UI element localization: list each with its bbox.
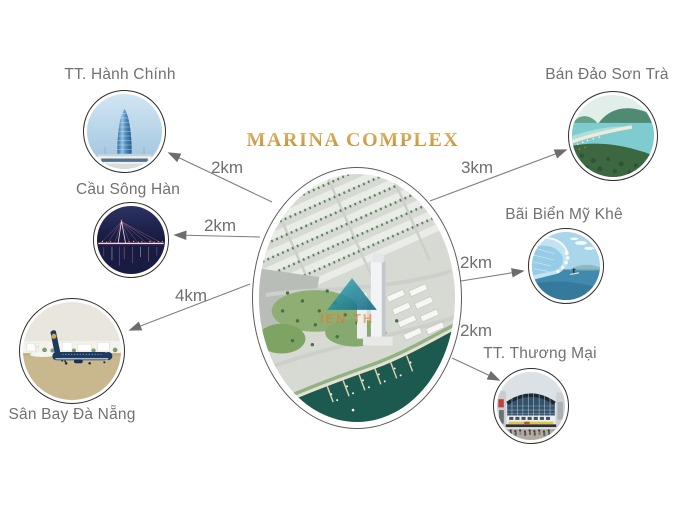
badge-thuong-mai [493, 368, 569, 444]
label-hanh-chinh: TT. Hành Chính [64, 66, 175, 84]
label-son-tra: Bán Đảo Sơn Trà [545, 66, 668, 84]
distance-thuong-mai: 2km [460, 321, 492, 341]
badge-my-khe [528, 228, 604, 304]
marina-complex-infographic: MARINA COMPLEX [0, 0, 675, 511]
admin-center-tower-photo [87, 94, 162, 169]
page-title: MARINA COMPLEX [247, 129, 460, 152]
arrow-to-son-tra [430, 150, 566, 201]
badge-hanh-chinh [83, 90, 166, 173]
distance-hanh-chinh: 2km [211, 158, 243, 178]
label-song-han: Cầu Sông Hàn [76, 181, 180, 199]
my-khe-wave-photo [532, 232, 600, 300]
badge-san-bay [19, 298, 125, 404]
distance-song-han: 2km [204, 216, 236, 236]
han-river-bridge-photo [97, 206, 165, 274]
airport-airplane-photo [23, 302, 121, 400]
label-san-bay: Sân Bay Đà Nẵng [8, 406, 135, 424]
badge-song-han [93, 202, 169, 278]
label-my-khe: Bãi Biển Mỹ Khê [505, 206, 623, 224]
badge-son-tra [568, 91, 658, 181]
watermark-text: IEN TH [320, 311, 374, 326]
label-thuong-mai: TT. Thương Mại [483, 345, 597, 363]
distance-my-khe: 2km [460, 253, 492, 273]
marina-complex-aerial-ellipse: IEN TH [252, 167, 462, 429]
son-tra-bay-photo [572, 95, 654, 177]
distance-san-bay: 4km [175, 286, 207, 306]
marina-complex-masterplan-render: IEN TH [259, 174, 455, 422]
shopping-mall-photo [497, 372, 565, 440]
distance-son-tra: 3km [461, 158, 493, 178]
